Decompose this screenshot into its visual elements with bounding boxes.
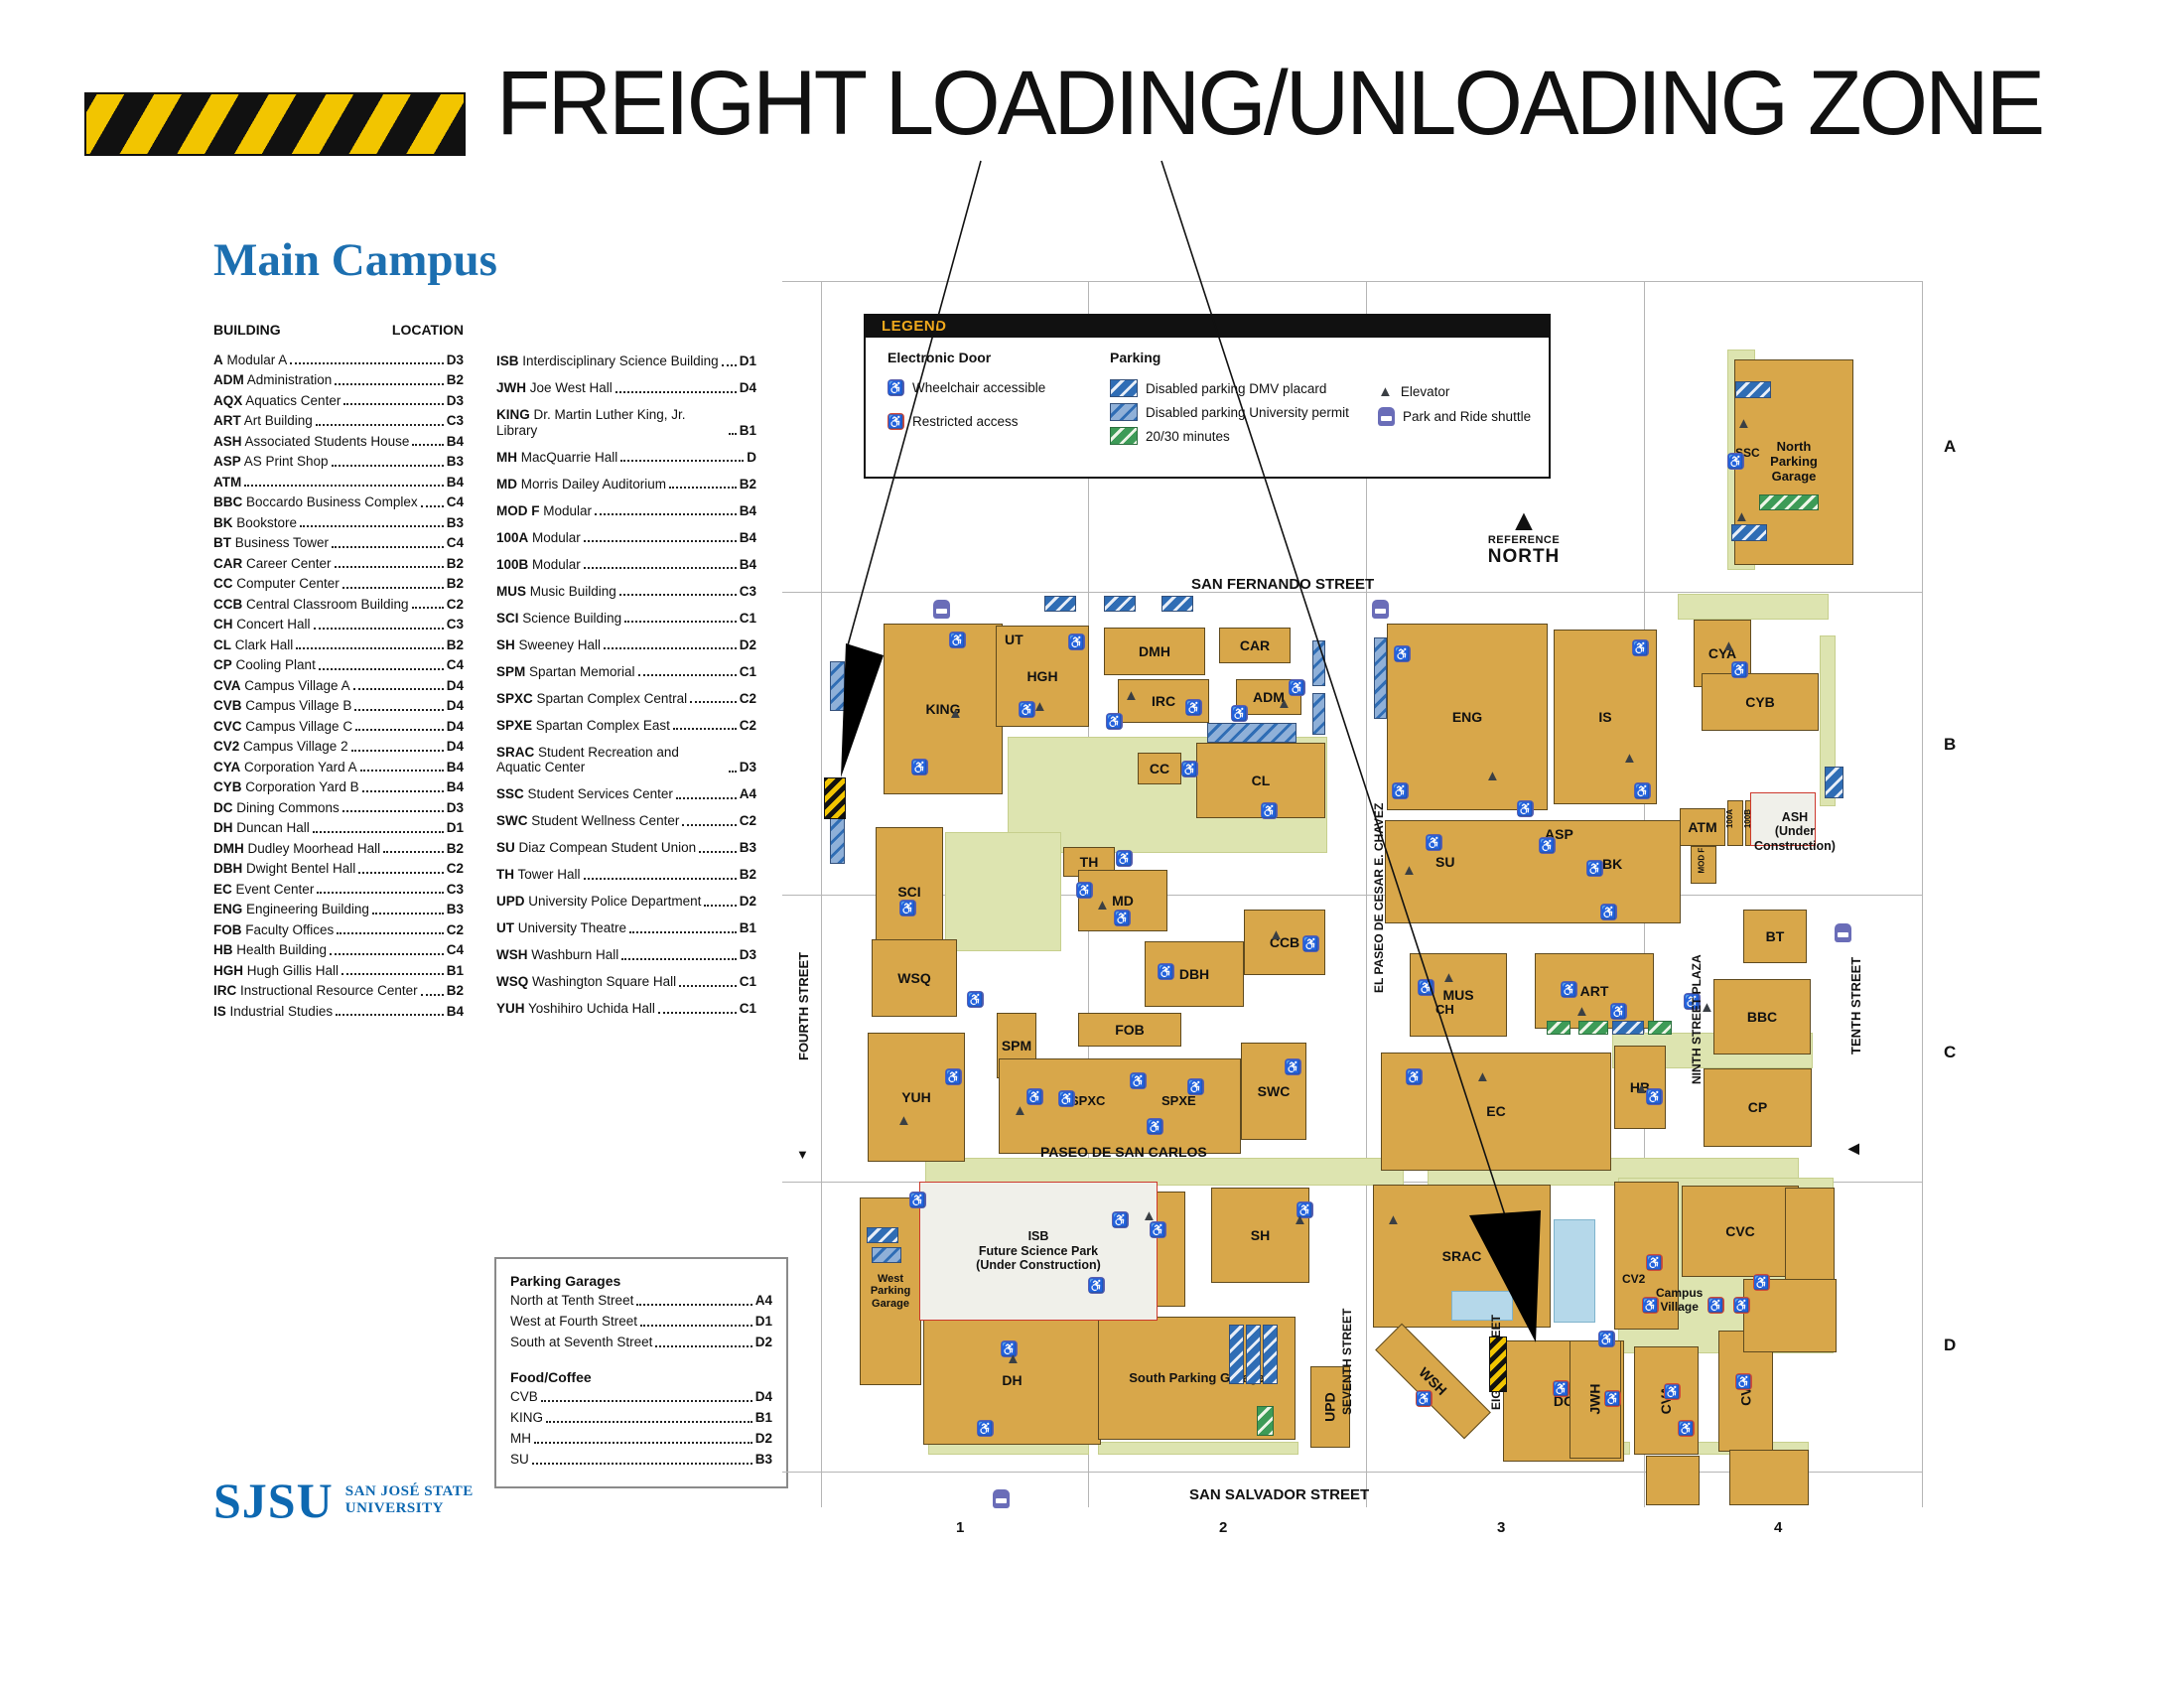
dotted-leader (362, 790, 444, 792)
directory-entry: MD Morris Dailey AuditoriumB2 (496, 477, 756, 492)
map-label-Campus: Campus Village (1656, 1287, 1703, 1315)
entry-text: DH Duncan Hall (213, 820, 310, 836)
street-label-SEVENTH-STREET: SEVENTH STREET (1340, 1309, 1354, 1415)
entry-text: CYA Corporation Yard A (213, 760, 357, 775)
directory-entry: MOD F ModularB4 (496, 503, 756, 519)
dotted-leader (421, 994, 444, 996)
lawn-area (1678, 594, 1829, 620)
legend-item-label: Wheelchair accessible (912, 380, 1045, 395)
entry-text: MH MacQuarrie Hall (496, 450, 617, 466)
dotted-leader (313, 831, 444, 833)
bus-window (1838, 932, 1848, 937)
wheelchair-accessible-icon: ♿ (909, 1192, 926, 1208)
dotted-leader (619, 594, 737, 596)
bus-window (936, 609, 947, 614)
building-BT: BT (1743, 910, 1807, 963)
dotted-leader (244, 485, 443, 487)
parking-swatch-icon (1825, 767, 1843, 798)
elevator-icon: ▲ (896, 1112, 911, 1129)
dotted-leader (546, 1421, 752, 1423)
dotted-leader (679, 985, 737, 987)
restricted-access-icon: ♿ (1642, 1297, 1659, 1314)
dotted-leader (729, 433, 737, 435)
entry-text: CVB (510, 1389, 538, 1405)
entry-location: B4 (740, 557, 756, 573)
legend-item-label: Elevator (1401, 384, 1450, 399)
dotted-leader (343, 403, 443, 405)
entry-text: SPXC Spartan Complex Central (496, 691, 687, 707)
entry-location: A4 (755, 1293, 772, 1309)
dotted-leader (290, 362, 443, 364)
entry-text: DC Dining Commons (213, 800, 340, 816)
directory-entry: SH Sweeney HallD2 (496, 637, 756, 653)
directory-entry: SSC Student Services CenterA4 (496, 786, 756, 802)
directory-entry: IS Industrial StudiesB4 (213, 1004, 464, 1020)
directory-entry: 100B ModularB4 (496, 557, 756, 573)
dotted-leader (412, 607, 444, 609)
wheelchair-accessible-icon: ♿ (1406, 1068, 1423, 1085)
directory-entry: IRC Instructional Resource CenterB2 (213, 983, 464, 999)
directory-entry: HB Health BuildingC4 (213, 942, 464, 958)
legend-title: LEGEND (864, 314, 1551, 338)
directory-entry: BK BookstoreB3 (213, 515, 464, 531)
lawn-area (1098, 1442, 1298, 1455)
entry-text: SU (510, 1452, 529, 1468)
directory-entry: ASP AS Print ShopB3 (213, 454, 464, 470)
wheelchair-accessible-icon: ♿ (1076, 882, 1093, 899)
entry-text: SU Diaz Compean Student Union (496, 840, 696, 856)
dotted-leader (532, 1463, 752, 1465)
university-permit-swatch-icon (1110, 403, 1138, 421)
entry-location: D1 (740, 353, 756, 369)
minutes-swatch-icon (1110, 427, 1138, 445)
entry-text: ART Art Building (213, 413, 313, 429)
grid-row-label: D (1944, 1336, 1956, 1355)
entry-location: B2 (447, 841, 464, 857)
street-label-PASEO-DE-SAN-CARLOS: PASEO DE SAN CARLOS (1040, 1144, 1207, 1160)
dotted-leader (620, 460, 744, 462)
dotted-leader (624, 621, 737, 623)
sjsu-acronym: SJSU (213, 1472, 334, 1529)
directory-entry: ENG Engineering BuildingB3 (213, 902, 464, 917)
entry-location: D3 (447, 393, 464, 409)
directory-entry: DBH Dwight Bentel HallC2 (213, 861, 464, 877)
building-ART: ART (1535, 953, 1654, 1029)
directory-entry: SPM Spartan MemorialC1 (496, 664, 756, 680)
parking-swatch-icon (1246, 1325, 1261, 1384)
entry-location: D4 (740, 380, 756, 396)
wheelchair-accessible-icon: ♿ (1731, 661, 1748, 678)
parking-swatch-icon (1547, 1021, 1570, 1035)
entry-text: MOD F Modular (496, 503, 592, 519)
pool-area (1451, 1291, 1513, 1321)
wheelchair-accessible-icon: ♿ (1261, 802, 1278, 819)
entry-text: UPD University Police Department (496, 894, 701, 910)
wheelchair-accessible-icon: ♿ (1147, 1118, 1163, 1135)
entry-text: IRC Instructional Resource Center (213, 983, 418, 999)
dotted-leader (336, 1014, 444, 1016)
building-DH: DH (923, 1317, 1101, 1445)
entry-text: 100B Modular (496, 557, 581, 573)
entry-text: SCI Science Building (496, 611, 621, 627)
north-triangle-icon: ▲ (1479, 508, 1569, 534)
directory-entry: SWC Student Wellness CenterC2 (496, 813, 756, 829)
building-YUH: YUH (868, 1033, 965, 1162)
entry-text: ISB Interdisciplinary Science Building (496, 353, 719, 369)
dotted-leader (355, 729, 444, 731)
directory-entry: EC Event CenterC3 (213, 882, 464, 898)
freight-zone-marker (1489, 1336, 1507, 1392)
entry-location: B3 (447, 515, 464, 531)
food-coffee-title: Food/Coffee (510, 1369, 772, 1385)
entry-text: EC Event Center (213, 882, 314, 898)
entry-location: B2 (740, 477, 756, 492)
elevator-icon: ▲ (1574, 1003, 1589, 1020)
dmv-placard-swatch-icon (1110, 379, 1138, 397)
entry-text: CP Cooling Plant (213, 657, 316, 673)
wheelchair-accessible-icon: ♿ (1561, 981, 1577, 998)
lawn-area (945, 832, 1061, 951)
directory-entry: North at Tenth StreetA4 (510, 1293, 772, 1309)
directory-entry: MHD2 (510, 1431, 772, 1447)
directory-entry: CC Computer CenterB2 (213, 576, 464, 592)
pool-area (1554, 1219, 1595, 1323)
elevator-icon: ▲ (1293, 1211, 1307, 1228)
entry-text: BT Business Tower (213, 535, 329, 551)
entry-location: A4 (740, 786, 756, 802)
entry-location: C3 (447, 617, 464, 633)
building-SWC: SWC (1241, 1043, 1306, 1140)
entry-location: D2 (755, 1335, 772, 1350)
entry-location: B2 (447, 372, 464, 388)
directory-entry: DC Dining CommonsD3 (213, 800, 464, 816)
restricted-access-icon: ♿ (1553, 1380, 1570, 1397)
parking-swatch-icon (1104, 596, 1136, 612)
reference-label: REFERENCE (1479, 534, 1569, 546)
elevator-icon: ▲ (1124, 687, 1139, 704)
restricted-access-icon: ♿ (1707, 1297, 1724, 1314)
directory-entry: SPXE Spartan Complex EastC2 (496, 718, 756, 734)
legend-item: ▲Elevator (1378, 383, 1449, 400)
entry-location: C2 (447, 597, 464, 613)
entry-text: SSC Student Services Center (496, 786, 673, 802)
dotted-leader (332, 465, 444, 467)
entry-location: D3 (740, 947, 756, 963)
directory-entry: KINGB1 (510, 1410, 772, 1426)
parking-swatch-icon (1731, 524, 1767, 541)
parking-swatch-icon (830, 661, 845, 711)
grid-hline (782, 281, 1922, 282)
parking-swatch-icon (1257, 1406, 1274, 1436)
street-label-▼: ▼ (796, 1147, 809, 1162)
building-KING: KING (884, 624, 1003, 794)
entry-location: B2 (447, 983, 464, 999)
restricted-access-icon: ♿ (1753, 1274, 1770, 1291)
directory-entry: CCB Central Classroom BuildingC2 (213, 597, 464, 613)
entry-location: B4 (447, 779, 464, 795)
wheelchair-accessible-icon: ♿ (1181, 761, 1198, 777)
entry-text: ATM (213, 475, 241, 491)
dotted-leader (353, 688, 444, 690)
dotted-leader (383, 851, 444, 853)
dotted-leader (541, 1400, 752, 1402)
entry-location: C2 (740, 718, 756, 734)
dotted-leader (335, 566, 444, 568)
dotted-leader (584, 567, 737, 569)
building-CVC: CVC (1682, 1186, 1799, 1277)
wheelchair-accessible-icon: ♿ (899, 900, 916, 916)
elevator-icon: ▲ (1441, 969, 1456, 986)
dotted-leader (676, 797, 737, 799)
dotted-leader (341, 973, 444, 975)
entry-text: WSH Washburn Hall (496, 947, 618, 963)
elevator-icon: ▲ (1736, 415, 1751, 432)
entry-text: CYB Corporation Yard B (213, 779, 359, 795)
legend-item-label: Disabled parking DMV placard (1146, 381, 1326, 396)
building-campus-village-east-1 (1785, 1188, 1835, 1281)
entry-location: B4 (447, 1004, 464, 1020)
entry-location: C2 (740, 691, 756, 707)
entry-location: C1 (740, 1001, 756, 1017)
building-WSQ: WSQ (872, 939, 957, 1017)
entry-location: D3 (447, 352, 464, 368)
entry-location: D4 (447, 678, 464, 694)
entry-text: CVA Campus Village A (213, 678, 350, 694)
entry-location: D1 (755, 1314, 772, 1330)
directory-entry: UT University TheatreB1 (496, 920, 756, 936)
entry-text: CC Computer Center (213, 576, 340, 592)
directory-entry: MUS Music BuildingC3 (496, 584, 756, 600)
entry-location: B2 (447, 576, 464, 592)
dotted-leader (669, 487, 737, 489)
shuttle-bus-icon (1835, 923, 1851, 942)
legend-item: ♿Restricted access (887, 413, 1019, 430)
building-FOB: FOB (1078, 1013, 1181, 1047)
shuttle-bus-icon (933, 600, 950, 619)
directory-entry: CYB Corporation Yard BB4 (213, 779, 464, 795)
dotted-leader (699, 851, 737, 853)
wheelchair-accessible-icon: ♿ (1598, 1331, 1615, 1347)
directory-entry: 100A ModularB4 (496, 530, 756, 546)
parking-swatch-icon (1648, 1021, 1672, 1035)
elevator-icon: ▲ (1277, 695, 1292, 712)
entry-text: SH Sweeney Hall (496, 637, 601, 653)
dotted-leader (330, 953, 444, 955)
page-title: FREIGHT LOADING/UNLOADING ZONE (496, 52, 2042, 156)
building-CAR: CAR (1219, 628, 1291, 663)
directory-entry: CL Clark HallB2 (213, 637, 464, 653)
dotted-leader (314, 628, 444, 630)
legend-body: Electronic Door ♿Wheelchair accessible♿R… (864, 338, 1551, 479)
wheelchair-accessible-icon: ♿ (1539, 837, 1556, 854)
restricted-access-icon: ♿ (1604, 1390, 1621, 1407)
dotted-leader (638, 674, 737, 676)
elevator-icon: ▲ (1032, 698, 1047, 715)
dotted-leader (342, 587, 444, 589)
directory-entry: CAR Career CenterB2 (213, 556, 464, 572)
dotted-leader (655, 1345, 751, 1347)
dotted-leader (358, 872, 443, 874)
wheelchair-accessible-icon: ♿ (1610, 1003, 1627, 1020)
directory-entry: ADM AdministrationB2 (213, 372, 464, 388)
directory-entry: BBC Boccardo Business ComplexC4 (213, 494, 464, 510)
dotted-leader (421, 505, 444, 507)
building-SH: SH (1211, 1188, 1309, 1283)
parking-swatch-icon (1578, 1021, 1608, 1035)
elevator-icon: ▲ (948, 705, 963, 722)
building-west-parking-garage: West Parking Garage (860, 1197, 921, 1385)
map-label-MOD-F: MOD F (1697, 848, 1706, 874)
dotted-leader (690, 701, 737, 703)
building-WSH: WSH (1375, 1324, 1491, 1440)
entry-text: South at Seventh Street (510, 1335, 652, 1350)
legend-item: Disabled parking DMV placard (1110, 379, 1326, 397)
restricted-access-icon: ♿ (1416, 1390, 1433, 1407)
wheelchair-accessible-icon: ♿ (1158, 963, 1174, 980)
grid-row-label: B (1944, 735, 1956, 755)
sjsu-name-line1: SAN JOSÉ STATE (345, 1483, 474, 1499)
elevator-icon: ▲ (1734, 508, 1749, 525)
entry-text: UT University Theatre (496, 920, 626, 936)
entry-location: B2 (447, 556, 464, 572)
dotted-leader (316, 424, 444, 426)
wheelchair-accessible-icon: ♿ (949, 632, 966, 648)
directory-entry: YUH Yoshihiro Uchida HallC1 (496, 1001, 756, 1017)
entry-location: B4 (447, 434, 464, 450)
dotted-leader (604, 647, 737, 649)
wheelchair-accessible-icon: ♿ (887, 379, 904, 396)
entry-text: CVC Campus Village C (213, 719, 352, 735)
entry-text: ASP AS Print Shop (213, 454, 329, 470)
entry-text: HB Health Building (213, 942, 327, 958)
directory-entry: DMH Dudley Moorhead HallB2 (213, 841, 464, 857)
grid-col-label: 2 (1219, 1519, 1227, 1536)
parking-swatch-icon (1229, 1325, 1244, 1384)
wheelchair-accessible-icon: ♿ (1116, 850, 1133, 867)
entry-text: TH Tower Hall (496, 867, 581, 883)
directory-entry: West at Fourth StreetD1 (510, 1314, 772, 1330)
directory-entry: CVBD4 (510, 1389, 772, 1405)
directory-entry: ATMB4 (213, 475, 464, 491)
wheelchair-accessible-icon: ♿ (1026, 1088, 1043, 1105)
entry-location: D3 (740, 760, 756, 775)
dotted-leader (722, 364, 737, 366)
dotted-leader (640, 1325, 752, 1327)
wheelchair-accessible-icon: ♿ (1285, 1058, 1301, 1075)
parking-swatch-icon (1374, 637, 1387, 719)
entry-location: D3 (447, 800, 464, 816)
elevator-icon: ▲ (1721, 637, 1736, 654)
entry-location: D1 (447, 820, 464, 836)
parking-swatch-icon (1312, 693, 1325, 735)
dotted-leader (337, 932, 443, 934)
entry-location: B4 (447, 760, 464, 775)
wheelchair-accessible-icon: ♿ (1114, 910, 1131, 926)
entry-text: SPM Spartan Memorial (496, 664, 635, 680)
grid-col-label: 4 (1774, 1519, 1782, 1536)
dotted-leader (658, 1012, 737, 1014)
entry-location: B3 (447, 902, 464, 917)
dotted-leader (354, 709, 443, 711)
dotted-leader (673, 728, 737, 730)
wheelchair-accessible-icon: ♿ (1634, 782, 1651, 799)
entry-location: D2 (740, 637, 756, 653)
entry-location: C2 (447, 922, 464, 938)
shuttle-bus-icon (1372, 600, 1389, 619)
building-CP: CP (1704, 1068, 1812, 1147)
elevator-icon: ▲ (1378, 383, 1393, 400)
sjsu-logo: SJSU SAN JOSÉ STATE UNIVERSITY (213, 1472, 474, 1529)
dotted-leader (319, 668, 444, 670)
reference-north: ▲ REFERENCE NORTH (1479, 508, 1569, 568)
street-label-SAN-SALVADOR-STREET: SAN SALVADOR STREET (1189, 1486, 1369, 1503)
dotted-leader (615, 391, 737, 393)
wheelchair-accessible-icon: ♿ (1088, 1277, 1105, 1294)
directory-entry: South at Seventh StreetD2 (510, 1335, 772, 1350)
legend-item-label: 20/30 minutes (1146, 429, 1230, 444)
entry-location: B1 (755, 1410, 772, 1426)
sjsu-name: SAN JOSÉ STATE UNIVERSITY (345, 1483, 474, 1517)
restricted-access-icon: ♿ (1735, 1373, 1752, 1390)
elevator-icon: ▲ (1013, 1102, 1027, 1119)
entry-location: D2 (740, 894, 756, 910)
map-label-CH: CH (1435, 1003, 1454, 1018)
wheelchair-accessible-icon: ♿ (1517, 800, 1534, 817)
building-BBC: BBC (1713, 979, 1811, 1055)
wheelchair-accessible-icon: ♿ (1392, 782, 1409, 799)
entry-text: ADM Administration (213, 372, 332, 388)
entry-location: B2 (447, 637, 464, 653)
entry-location: C3 (447, 413, 464, 429)
entry-location: C2 (447, 861, 464, 877)
restricted-access-icon: ♿ (1664, 1383, 1681, 1400)
building-campus-village-south-2 (1729, 1450, 1809, 1505)
entry-text: CCB Central Classroom Building (213, 597, 409, 613)
legend-item: Disabled parking University permit (1110, 403, 1349, 421)
parking-swatch-icon (867, 1227, 898, 1243)
entry-text: BK Bookstore (213, 515, 297, 531)
entry-location: C1 (740, 664, 756, 680)
wheelchair-accessible-icon: ♿ (1187, 1078, 1204, 1095)
wheelchair-accessible-icon: ♿ (1632, 639, 1649, 656)
legend-parking-title: Parking (1110, 350, 1160, 365)
shuttle-bus-icon (993, 1489, 1010, 1508)
entry-location: B3 (740, 840, 756, 856)
parking-garages-title: Parking Garages (510, 1273, 772, 1289)
entry-text: 100A Modular (496, 530, 581, 546)
entry-text: West at Fourth Street (510, 1314, 637, 1330)
shuttle-bus-icon (1378, 407, 1395, 426)
wheelchair-accessible-icon: ♿ (945, 1068, 962, 1085)
wheelchair-accessible-icon: ♿ (1068, 633, 1085, 650)
directory-entry: KING Dr. Martin Luther King, Jr. Library… (496, 407, 756, 438)
entry-location: B1 (447, 963, 464, 979)
dotted-leader (534, 1442, 752, 1444)
parking-swatch-icon (1312, 640, 1325, 686)
wheelchair-accessible-icon: ♿ (1112, 1211, 1129, 1228)
entry-location: D4 (755, 1389, 772, 1405)
grid-col-label: 3 (1497, 1519, 1505, 1536)
map-label-SPXC: SPXC (1070, 1094, 1105, 1109)
entry-text: MH (510, 1431, 531, 1447)
parking-swatch-icon (1044, 596, 1076, 612)
entry-location: C3 (447, 882, 464, 898)
building-ISB: ISB Future Science Park (Under Construct… (919, 1182, 1158, 1321)
grid-vline (1922, 281, 1923, 1507)
entry-text: ENG Engineering Building (213, 902, 369, 917)
directory-entry: FOB Faculty OfficesC2 (213, 922, 464, 938)
legend-item-label: Disabled parking University permit (1146, 405, 1349, 420)
